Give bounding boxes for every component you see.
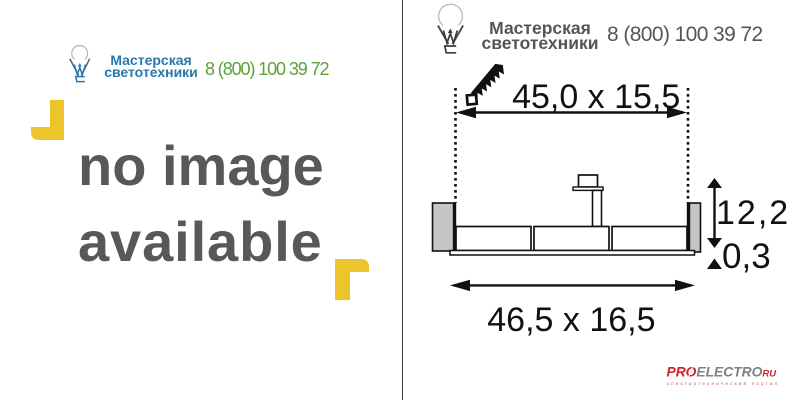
svg-text:12,2: 12,2	[716, 194, 790, 232]
svg-text:электротехнический портал: электротехнический портал	[667, 380, 780, 387]
svg-text:46,5 x 16,5: 46,5 x 16,5	[487, 301, 655, 339]
svg-text:45,0 x 15,5: 45,0 x 15,5	[512, 78, 680, 116]
svg-text:0,3: 0,3	[722, 237, 771, 276]
svg-text:PROELECTRORU: PROELECTRORU	[667, 365, 778, 380]
